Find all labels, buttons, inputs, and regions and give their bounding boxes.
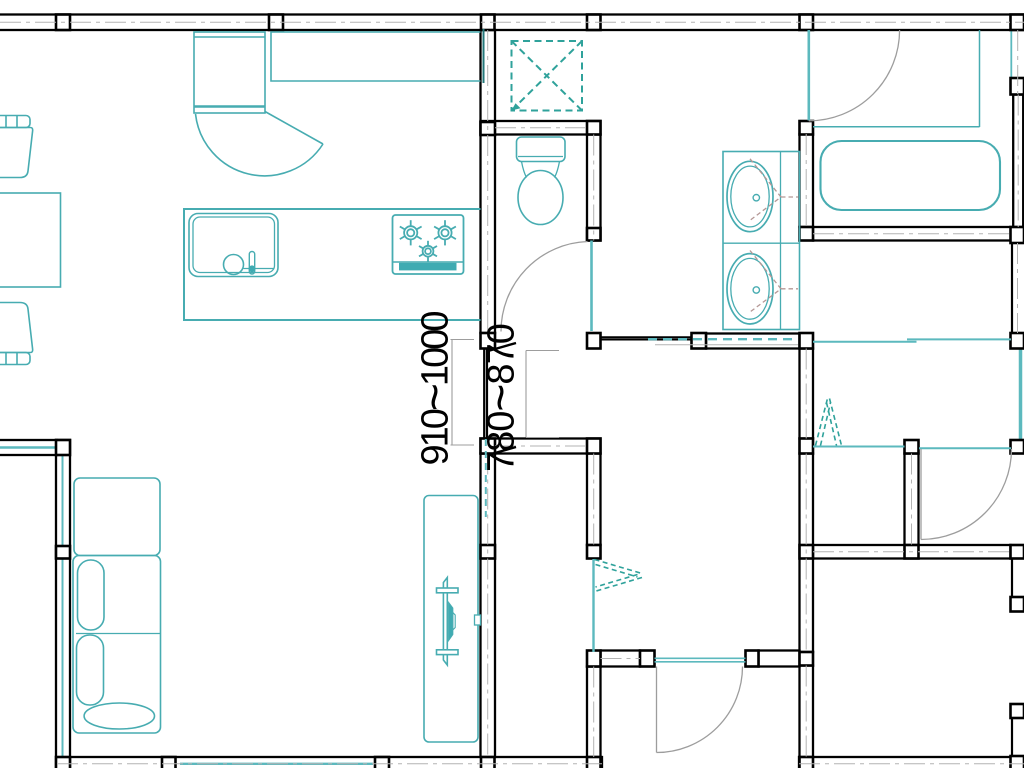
svg-text:780~870: 780~870 (475, 324, 528, 472)
svg-text:910~1000: 910~1000 (409, 312, 462, 466)
